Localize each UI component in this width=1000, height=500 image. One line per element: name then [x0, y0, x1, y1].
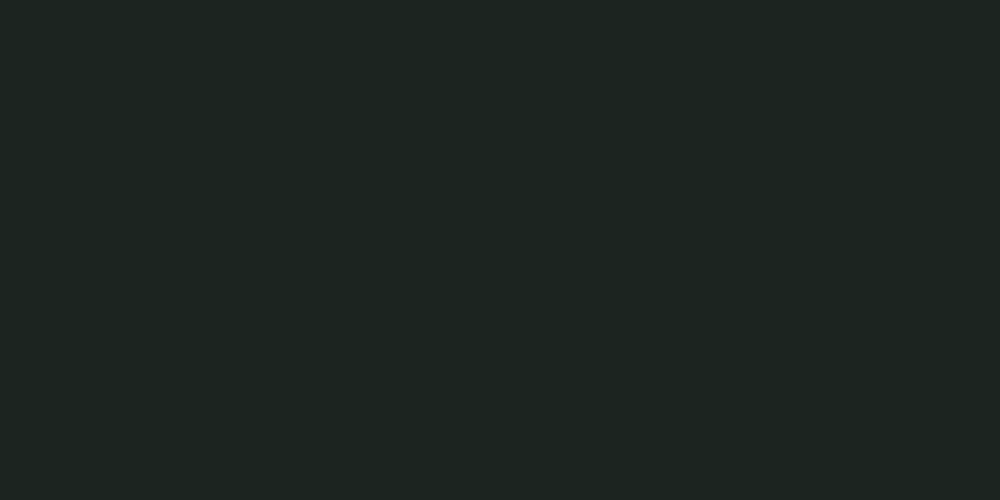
aerial-render: Aerial rendering of a campus master plan…: [0, 0, 1000, 500]
render-canvas: Aerial rendering of a campus master plan…: [0, 0, 1000, 500]
